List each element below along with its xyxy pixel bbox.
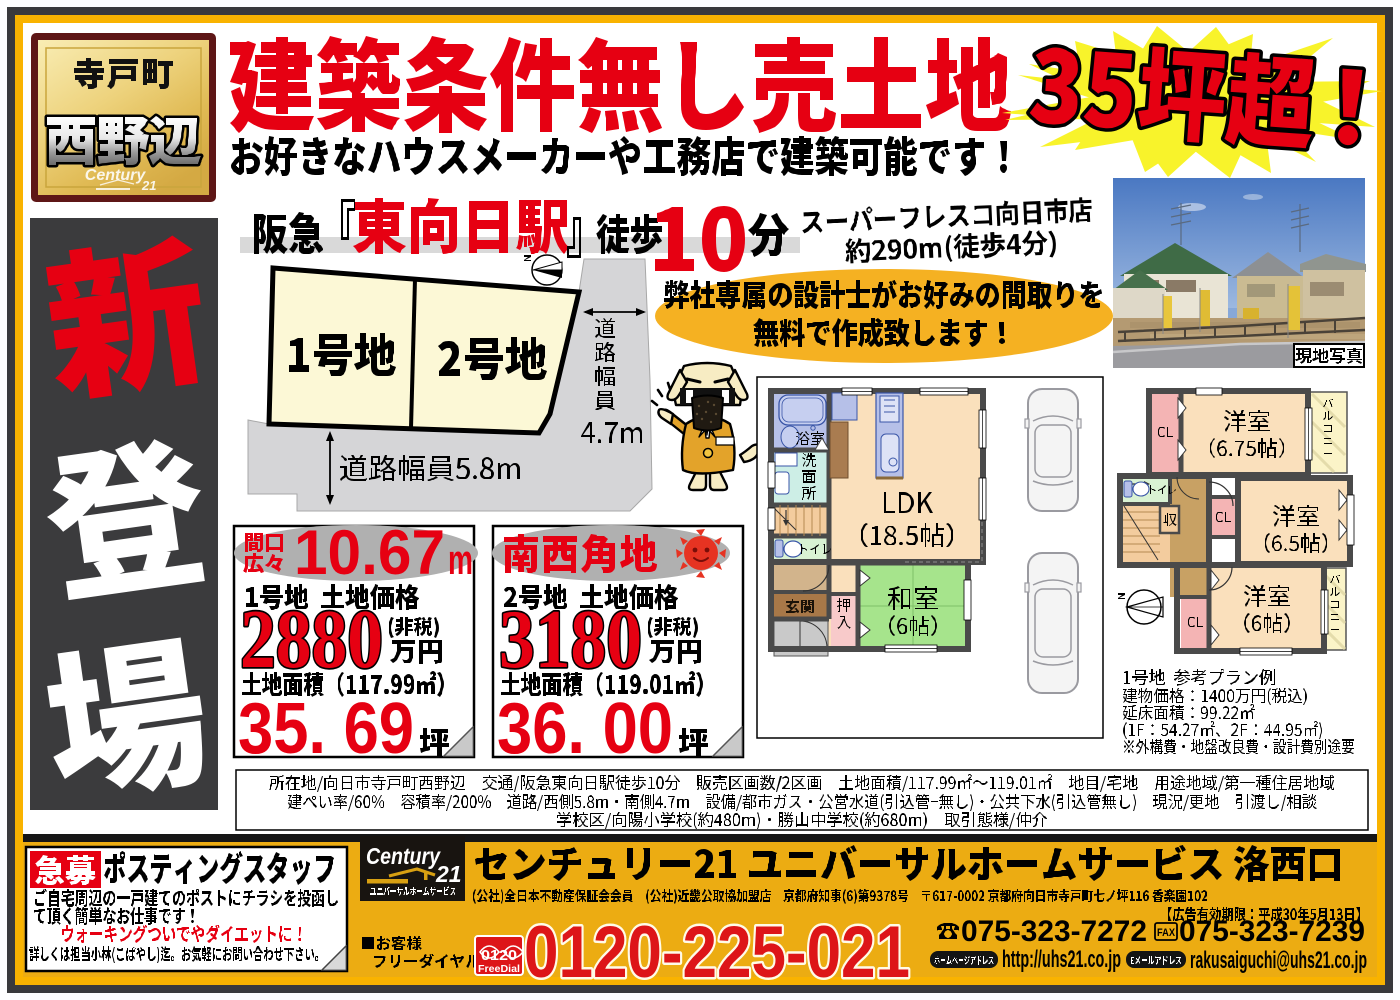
svg-text:075-323-7272: 075-323-7272 (961, 915, 1147, 948)
svg-text:0120: 0120 (481, 947, 517, 964)
svg-text:0120-225-021: 0120-225-021 (524, 912, 910, 993)
svg-text:FAX: FAX (1157, 927, 1176, 939)
svg-text:Century: Century (366, 843, 441, 869)
svg-text:21: 21 (435, 861, 462, 887)
svg-text:FreeDial: FreeDial (478, 963, 520, 975)
svg-text:http://uhs21.co.jp: http://uhs21.co.jp (1002, 946, 1121, 973)
svg-text:Century: Century (85, 167, 147, 184)
svg-text:3180: 3180 (499, 593, 642, 686)
svg-text:10.67: 10.67 (294, 518, 445, 588)
svg-text:rakusaiguchi@uhs21.co.jp: rakusaiguchi@uhs21.co.jp (1190, 947, 1367, 974)
svg-text:21: 21 (141, 178, 156, 193)
svg-text:36. 00: 36. 00 (497, 689, 673, 769)
svg-text:075-323-7239: 075-323-7239 (1179, 915, 1365, 948)
svg-text:2880: 2880 (240, 593, 383, 686)
svg-text:m: m (448, 536, 473, 583)
svg-text:35. 69: 35. 69 (238, 689, 414, 769)
